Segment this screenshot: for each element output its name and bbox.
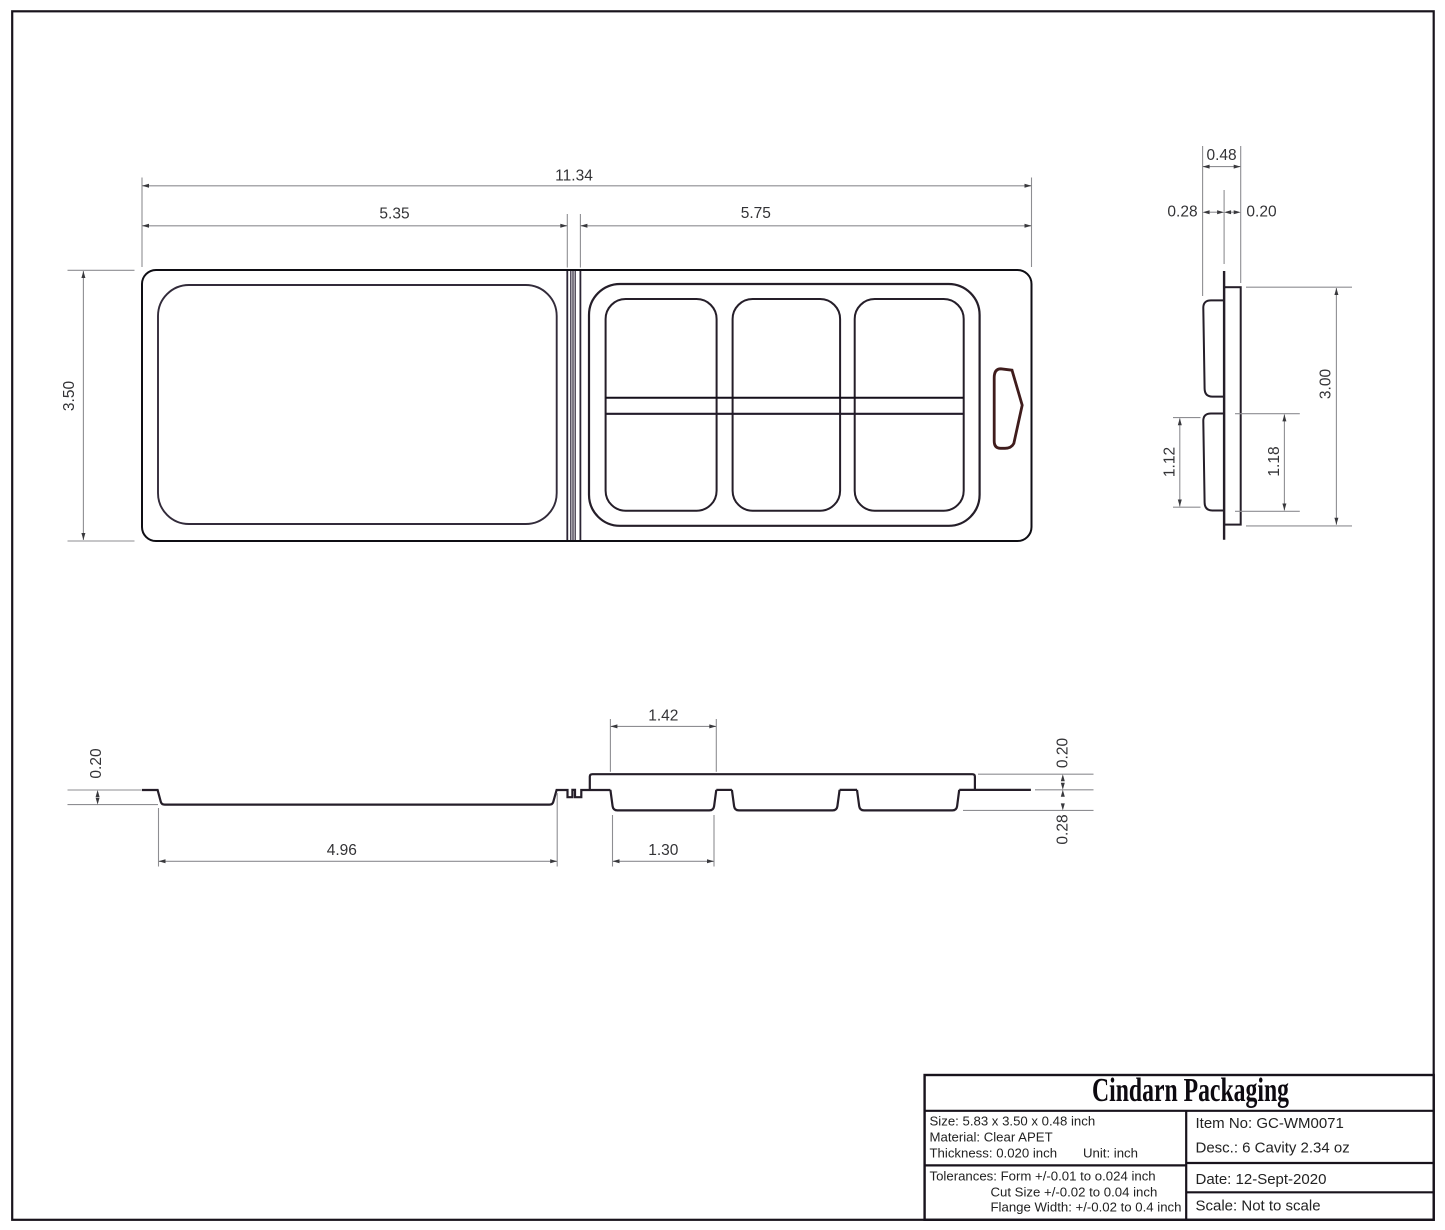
svg-text:0.28: 0.28 — [1167, 203, 1197, 220]
svg-text:5.75: 5.75 — [741, 205, 771, 222]
svg-text:Material: Clear APET: Material: Clear APET — [930, 1130, 1053, 1145]
svg-text:Scale: Not to scale: Scale: Not to scale — [1196, 1197, 1321, 1214]
svg-text:Tolerances: Form +/-0.01 to o.: Tolerances: Form +/-0.01 to o.024 inch — [930, 1169, 1156, 1184]
svg-text:0.20: 0.20 — [1055, 738, 1072, 769]
svg-text:1.42: 1.42 — [648, 707, 678, 724]
svg-text:Flange Width: +/-0.02 to 0.4 i: Flange Width: +/-0.02 to 0.4 inch — [991, 1200, 1182, 1215]
svg-text:Date: 12-Sept-2020: Date: 12-Sept-2020 — [1196, 1171, 1327, 1188]
svg-text:Unit: inch: Unit: inch — [1083, 1145, 1138, 1160]
svg-text:Cut Size +/-0.02 to 0.04 inch: Cut Size +/-0.02 to 0.04 inch — [991, 1184, 1158, 1199]
svg-text:Thickness: 0.020 inch: Thickness: 0.020 inch — [930, 1145, 1058, 1160]
svg-text:3.00: 3.00 — [1318, 369, 1335, 400]
svg-text:4.96: 4.96 — [327, 842, 357, 859]
svg-text:Desc.: 6 Cavity 2.34 oz: Desc.: 6 Cavity 2.34 oz — [1196, 1139, 1350, 1156]
svg-text:Size: 5.83 x 3.50 x 0.48 inch: Size: 5.83 x 3.50 x 0.48 inch — [930, 1113, 1096, 1128]
svg-text:Item No: GC-WM0071: Item No: GC-WM0071 — [1196, 1115, 1344, 1132]
svg-text:3.50: 3.50 — [61, 381, 78, 412]
svg-text:11.34: 11.34 — [555, 167, 593, 184]
svg-text:0.20: 0.20 — [1246, 203, 1277, 220]
svg-text:5.35: 5.35 — [379, 205, 409, 222]
svg-text:0.48: 0.48 — [1207, 147, 1237, 164]
svg-text:1.30: 1.30 — [648, 842, 679, 859]
svg-text:0.28: 0.28 — [1055, 814, 1072, 844]
svg-text:1.12: 1.12 — [1162, 447, 1179, 477]
svg-text:Cindarn Packaging: Cindarn Packaging — [1092, 1072, 1289, 1109]
svg-text:0.20: 0.20 — [88, 748, 105, 779]
svg-text:1.18: 1.18 — [1266, 446, 1283, 476]
